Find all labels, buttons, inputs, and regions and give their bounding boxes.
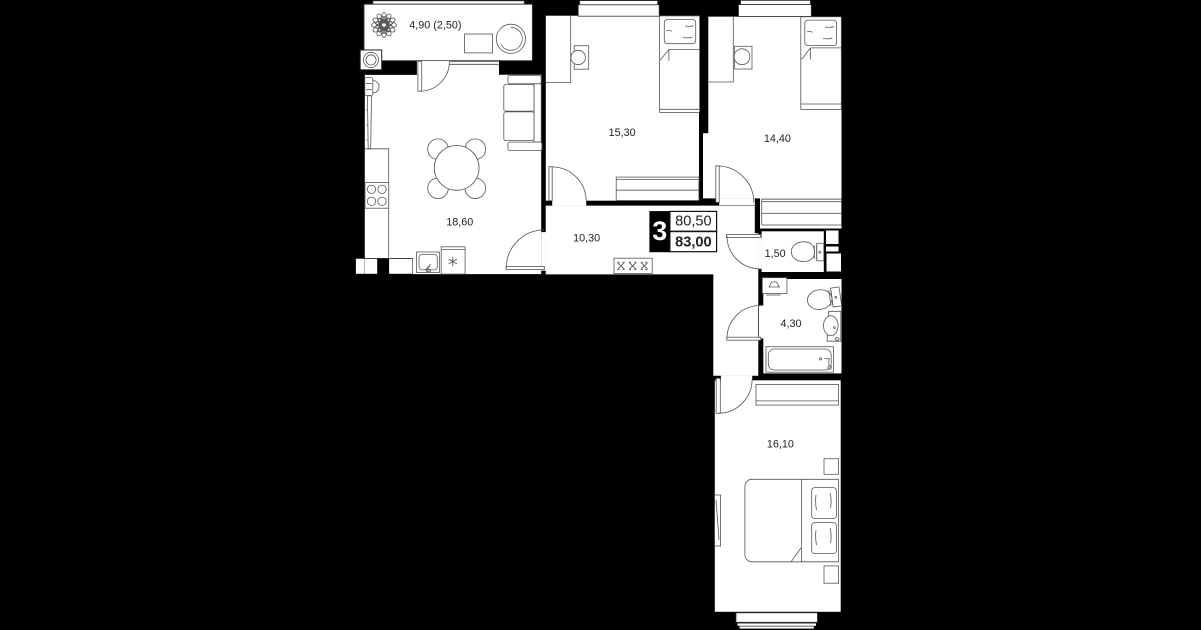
svg-text:3: 3 <box>652 216 667 246</box>
svg-text:10,30: 10,30 <box>573 233 600 245</box>
svg-text:14,40: 14,40 <box>764 133 791 145</box>
svg-text:4,30: 4,30 <box>780 318 801 330</box>
svg-text:83,00: 83,00 <box>675 234 712 250</box>
svg-text:18,60: 18,60 <box>446 217 473 229</box>
svg-text:1,50: 1,50 <box>765 248 786 260</box>
svg-text:16,10: 16,10 <box>767 438 794 450</box>
svg-text:15,30: 15,30 <box>609 127 636 139</box>
svg-text:80,50: 80,50 <box>675 214 712 230</box>
svg-text:4,90 (2,50): 4,90 (2,50) <box>409 20 461 32</box>
